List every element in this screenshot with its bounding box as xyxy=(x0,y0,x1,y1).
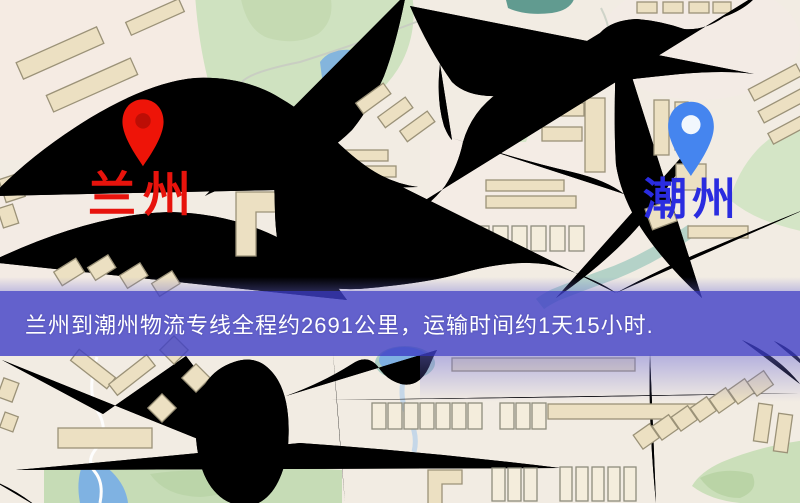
map-background xyxy=(0,0,800,503)
route-info-text: 兰州到潮州物流专线全程约2691公里，运输时间约1天15小时. xyxy=(0,308,654,340)
origin-map-pin-icon xyxy=(116,96,170,168)
logistics-route-map: 兰州 潮州 兰州到潮州物流专线全程约2691公里，运输时间约1天15小时. xyxy=(0,0,800,503)
banner-top-fade xyxy=(0,277,800,291)
route-info-banner: 兰州到潮州物流专线全程约2691公里，运输时间约1天15小时. xyxy=(0,291,800,356)
destination-label: 潮州 xyxy=(643,178,741,222)
destination-map-pin-icon xyxy=(662,98,720,178)
banner-bottom-fade xyxy=(420,356,800,402)
origin-label: 兰州 xyxy=(88,172,198,220)
